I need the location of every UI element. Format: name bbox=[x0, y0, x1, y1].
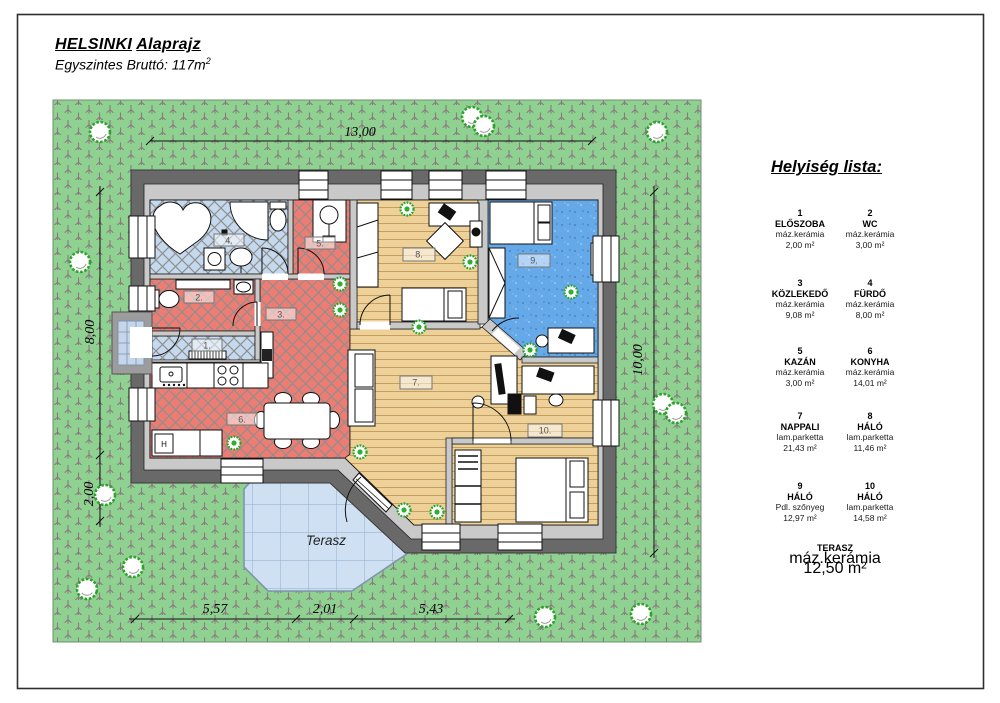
toilet-tank bbox=[270, 202, 286, 209]
room-num: 4 bbox=[835, 278, 905, 289]
desk bbox=[522, 366, 594, 394]
room-label-text: 6. bbox=[238, 415, 246, 425]
page-title: HELSINKI Alaprajz bbox=[55, 36, 211, 54]
pc-tower bbox=[524, 396, 536, 414]
room-entry-10: 10 HÁLÓ lam.parketta 14,58 m² bbox=[835, 481, 905, 523]
room-entry-7: 7 NAPPALI lam.parketta 21,43 m² bbox=[765, 411, 835, 453]
pillow bbox=[538, 205, 550, 222]
room-name: FÜRDŐ bbox=[835, 289, 905, 300]
dim-bottom-right: 5,43 bbox=[419, 602, 444, 617]
boiler-room-fixtures bbox=[313, 200, 346, 242]
room-entry-6: 6 KONYHA máz.kerámia 14,01 m² bbox=[835, 346, 905, 388]
electrical-panel bbox=[262, 349, 272, 361]
terrace-entry: TERASZ máz.kerámia 12,50 m² bbox=[765, 543, 905, 575]
window bbox=[381, 171, 412, 199]
dining-table bbox=[264, 403, 330, 439]
room-name: ELŐSZOBA bbox=[765, 219, 835, 230]
room-entry-3: 3 KÖZLEKEDŐ máz.kerámia 9,08 m² bbox=[765, 278, 835, 320]
room-entry-4: 4 FÜRDŐ máz.kerámia 8,00 m² bbox=[835, 278, 905, 320]
room-num: 7 bbox=[765, 411, 835, 422]
room-label-9: 9. bbox=[518, 254, 550, 267]
room-num: 8 bbox=[835, 411, 905, 422]
room-entry-8: 8 HÁLÓ lam.parketta 11,46 m² bbox=[835, 411, 905, 453]
room-area: 3,00 m² bbox=[765, 378, 835, 389]
room-material: máz.kerámia bbox=[835, 229, 905, 240]
room-label-5: 5. bbox=[305, 237, 335, 249]
room-label-text: 4. bbox=[225, 236, 233, 246]
window bbox=[221, 459, 263, 483]
room-label-text: 7. bbox=[412, 378, 420, 388]
title-block: HELSINKI Alaprajz Egyszintes Bruttó: 117… bbox=[55, 36, 211, 73]
pillow bbox=[570, 492, 584, 518]
room-list-title: Helyiség lista: bbox=[771, 158, 905, 177]
dim-bottom-middle: 2,01 bbox=[313, 602, 338, 617]
title-word-1: HELSINKI bbox=[55, 36, 132, 53]
room-label-4: 4. bbox=[214, 234, 244, 246]
room-area: 14,58 m² bbox=[835, 513, 905, 524]
room-name: HÁLÓ bbox=[835, 422, 905, 433]
room-list-row: 3 KÖZLEKEDŐ máz.kerámia 9,08 m² 4 FÜRDŐ … bbox=[765, 278, 905, 320]
room-num: 6 bbox=[835, 346, 905, 357]
room-label-7: 7. bbox=[400, 376, 432, 389]
room-name: KONYHA bbox=[835, 357, 905, 368]
room-num: 1 bbox=[765, 208, 835, 219]
room-num: 3 bbox=[765, 278, 835, 289]
room-material: Pdl. szőnyeg bbox=[765, 502, 835, 513]
chair bbox=[472, 396, 484, 408]
room-material: máz.kerámia bbox=[765, 367, 835, 378]
room-material: máz.kerámia bbox=[835, 299, 905, 310]
toilet bbox=[270, 209, 286, 231]
window bbox=[498, 524, 542, 550]
room-name: WC bbox=[835, 219, 905, 230]
sink bbox=[230, 248, 252, 266]
room-entry-2: 2 WC máz.kerámia 3,00 m² bbox=[835, 208, 905, 250]
room-name: HÁLÓ bbox=[835, 492, 905, 503]
floor-plan-page: 13,00 8,00 2,00 10,00 5,57 2,01 5,43 bbox=[0, 0, 1000, 703]
window bbox=[299, 171, 328, 199]
room-label-6: 6. bbox=[227, 413, 257, 425]
wardrobe bbox=[489, 248, 505, 318]
dim-left-upper: 8,00 bbox=[83, 320, 98, 345]
subtitle-superscript: 2 bbox=[206, 56, 211, 66]
room-area: 9,08 m² bbox=[765, 310, 835, 321]
room-list-row: 7 NAPPALI lam.parketta 21,43 m² 8 HÁLÓ l… bbox=[765, 411, 905, 453]
room-entry-5: 5 KAZÁN máz.kerámia 3,00 m² bbox=[765, 346, 835, 388]
room-list-row: 5 KAZÁN máz.kerámia 3,00 m² 6 KONYHA máz… bbox=[765, 346, 905, 388]
room-area: 11,46 m² bbox=[835, 443, 905, 454]
room-name: HÁLÓ bbox=[765, 492, 835, 503]
room-material: lam.parketta bbox=[765, 432, 835, 443]
room-label-text: 5. bbox=[316, 239, 324, 249]
room-material: lam.parketta bbox=[835, 502, 905, 513]
room-area: 12,50 m² bbox=[765, 564, 905, 575]
wc-shelf bbox=[176, 280, 230, 289]
room-area: 21,43 m² bbox=[765, 443, 835, 454]
chair bbox=[536, 335, 548, 347]
room-label-text: 10. bbox=[539, 426, 552, 436]
room-label-3: 3. bbox=[266, 308, 296, 320]
desk-chair bbox=[549, 394, 563, 406]
room-label-10: 10. bbox=[528, 424, 562, 437]
room-label-text: 3. bbox=[277, 310, 285, 320]
pc-tower-2 bbox=[508, 394, 521, 414]
room-list-row-terrace: TERASZ máz.kerámia 12,50 m² bbox=[765, 543, 905, 575]
window bbox=[593, 400, 619, 446]
subtitle-text: Egyszintes Bruttó: 117m bbox=[55, 57, 206, 73]
window bbox=[593, 236, 619, 282]
room-label-text: 8. bbox=[415, 250, 423, 260]
room-material: máz.kerámia bbox=[765, 299, 835, 310]
dim-right: 10,00 bbox=[631, 344, 646, 376]
window bbox=[129, 286, 155, 311]
room-area: 12,97 m² bbox=[765, 513, 835, 524]
toilet bbox=[159, 291, 179, 308]
room-num: 9 bbox=[765, 481, 835, 492]
entry-porch bbox=[112, 312, 152, 374]
title-word-2: Alaprajz bbox=[136, 36, 201, 53]
room-area: 3,00 m² bbox=[835, 240, 905, 251]
room-num: 5 bbox=[765, 346, 835, 357]
room-num: 2 bbox=[835, 208, 905, 219]
pillow bbox=[448, 291, 462, 318]
pillow bbox=[538, 223, 550, 240]
room-material: lam.parketta bbox=[835, 432, 905, 443]
room-label-8: 8. bbox=[403, 248, 435, 261]
room-name: NAPPALI bbox=[765, 422, 835, 433]
room-label-2: 2. bbox=[184, 291, 214, 303]
room-entry-1: 1 ELŐSZOBA máz.kerámia 2,00 m² bbox=[765, 208, 835, 250]
room-area: 14,01 m² bbox=[835, 378, 905, 389]
room-label-text: 2. bbox=[195, 293, 203, 303]
room-area: 8,00 m² bbox=[835, 310, 905, 321]
window bbox=[422, 524, 460, 550]
terrace-label: Terasz bbox=[306, 533, 346, 548]
window bbox=[429, 171, 462, 199]
window bbox=[129, 388, 155, 421]
wardrobe bbox=[357, 203, 378, 287]
dim-top: 13,00 bbox=[344, 125, 376, 140]
room-label-1: 1. bbox=[192, 339, 222, 351]
entry-door-gap bbox=[130, 327, 152, 358]
room-material: máz.kerámia bbox=[835, 367, 905, 378]
room-list-row: 9 HÁLÓ Pdl. szőnyeg 12,97 m² 10 HÁLÓ lam… bbox=[765, 481, 905, 523]
room-entry-9: 9 HÁLÓ Pdl. szőnyeg 12,97 m² bbox=[765, 481, 835, 523]
room-num: 10 bbox=[835, 481, 905, 492]
fridge-label: H bbox=[161, 440, 167, 449]
window bbox=[129, 216, 155, 258]
pillow bbox=[570, 461, 584, 487]
room-name: KAZÁN bbox=[765, 357, 835, 368]
room-material: máz.kerámia bbox=[765, 229, 835, 240]
room-name: KÖZLEKEDŐ bbox=[765, 289, 835, 300]
room-list: Helyiség lista: 1 ELŐSZOBA máz.kerámia 2… bbox=[765, 158, 905, 177]
room-label-text: 1. bbox=[203, 341, 211, 351]
room-list-row: 1 ELŐSZOBA máz.kerámia 2,00 m² 2 WC máz.… bbox=[765, 208, 905, 250]
room-area: 2,00 m² bbox=[765, 240, 835, 251]
page-subtitle: Egyszintes Bruttó: 117m2 bbox=[55, 56, 211, 73]
bedroom10-furniture bbox=[455, 450, 588, 522]
dim-bottom-left: 5,57 bbox=[203, 602, 229, 617]
doormat bbox=[189, 351, 226, 359]
window bbox=[486, 171, 526, 199]
room-label-text: 9. bbox=[530, 256, 538, 266]
